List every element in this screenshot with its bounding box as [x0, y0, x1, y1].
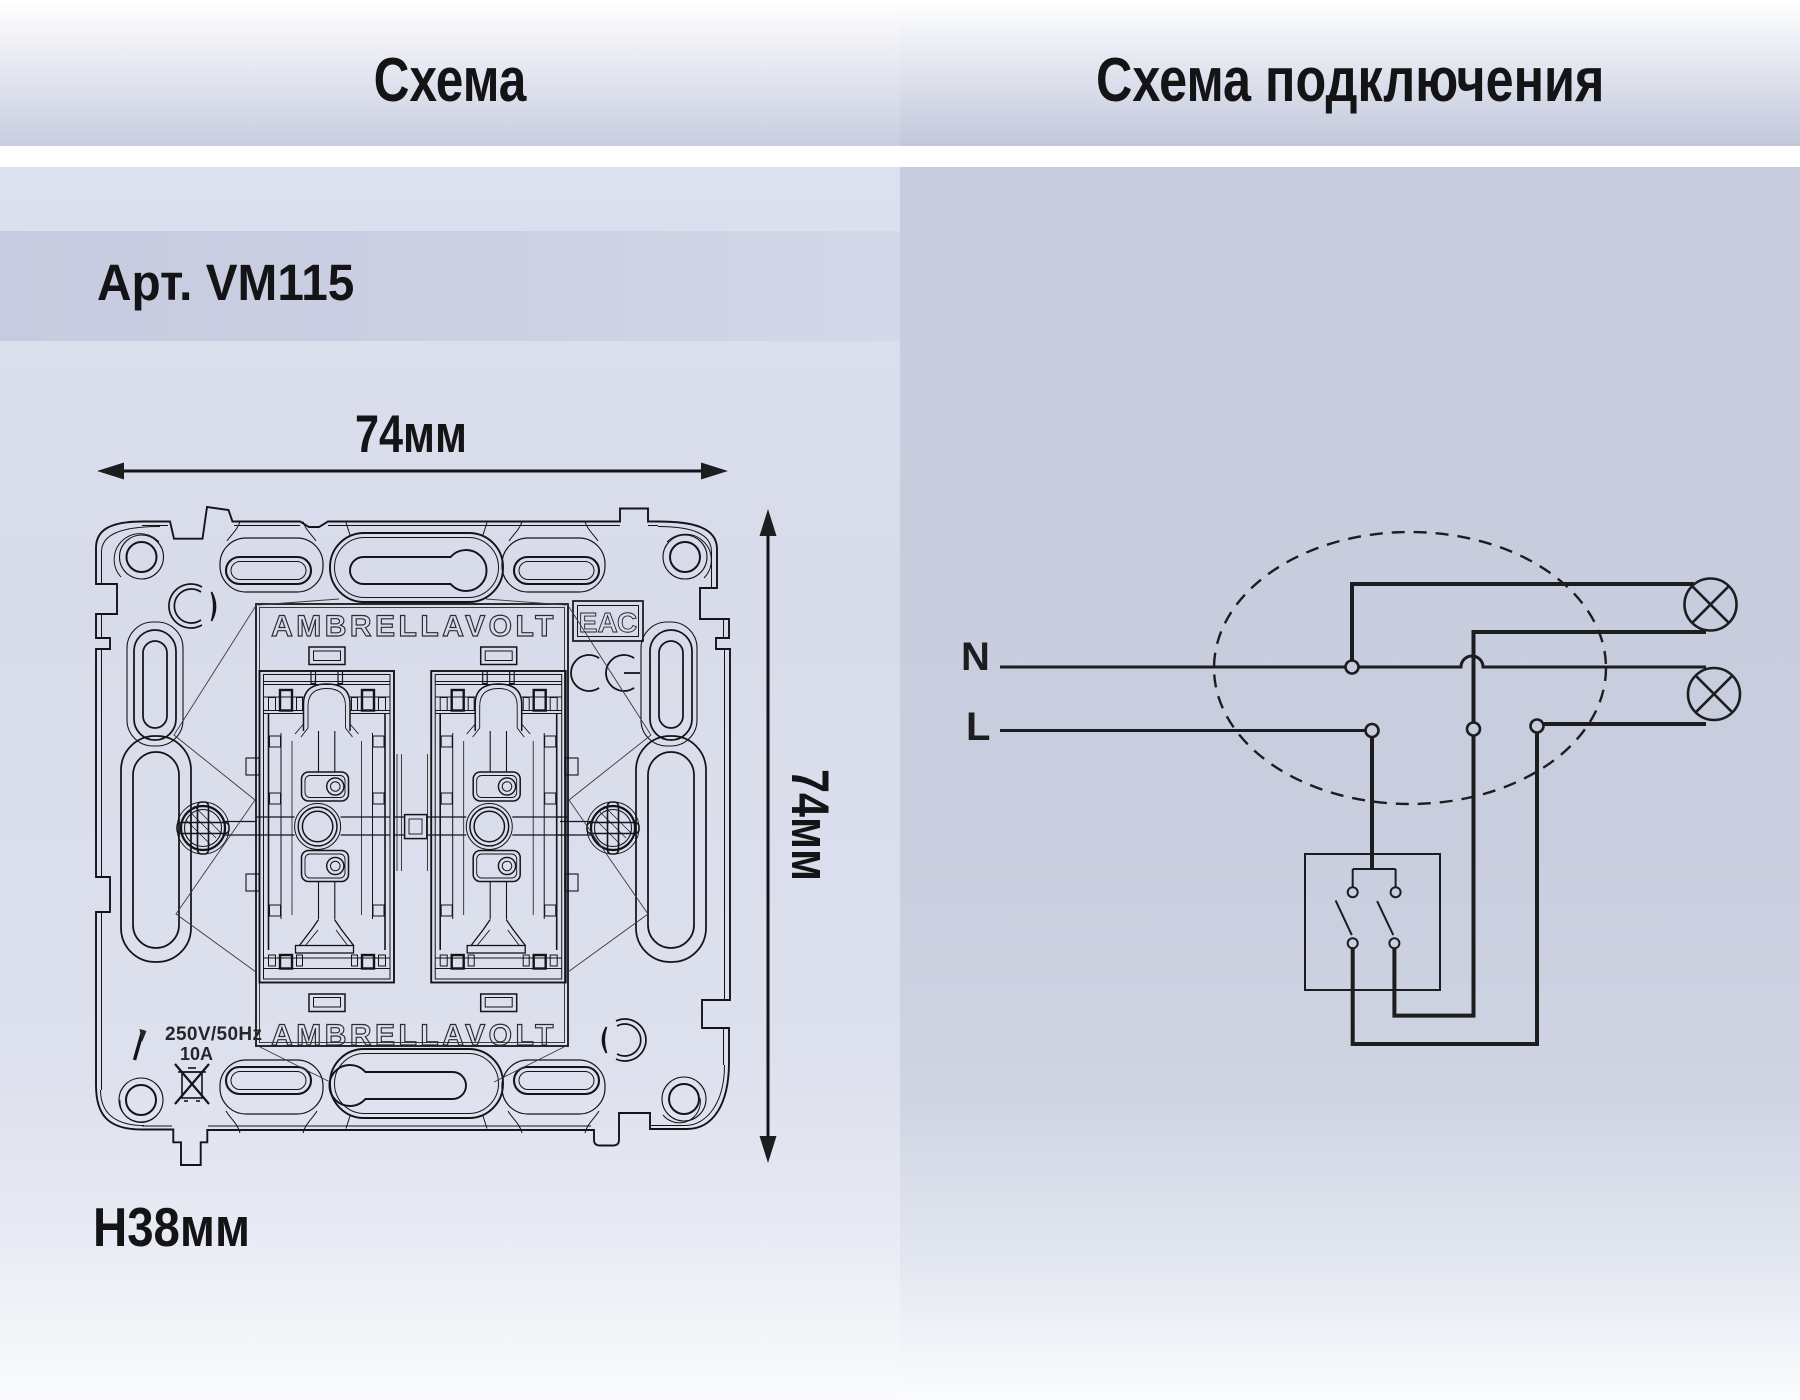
svg-text:AMBRELLAVOLT: AMBRELLAVOLT	[271, 1019, 557, 1052]
svg-text:250V/50Hz: 250V/50Hz	[165, 1024, 262, 1045]
svg-text:10A: 10A	[180, 1044, 213, 1064]
svg-text:ЕАС: ЕАС	[579, 607, 637, 638]
svg-text:AMBRELLAVOLT: AMBRELLAVOLT	[271, 610, 557, 643]
